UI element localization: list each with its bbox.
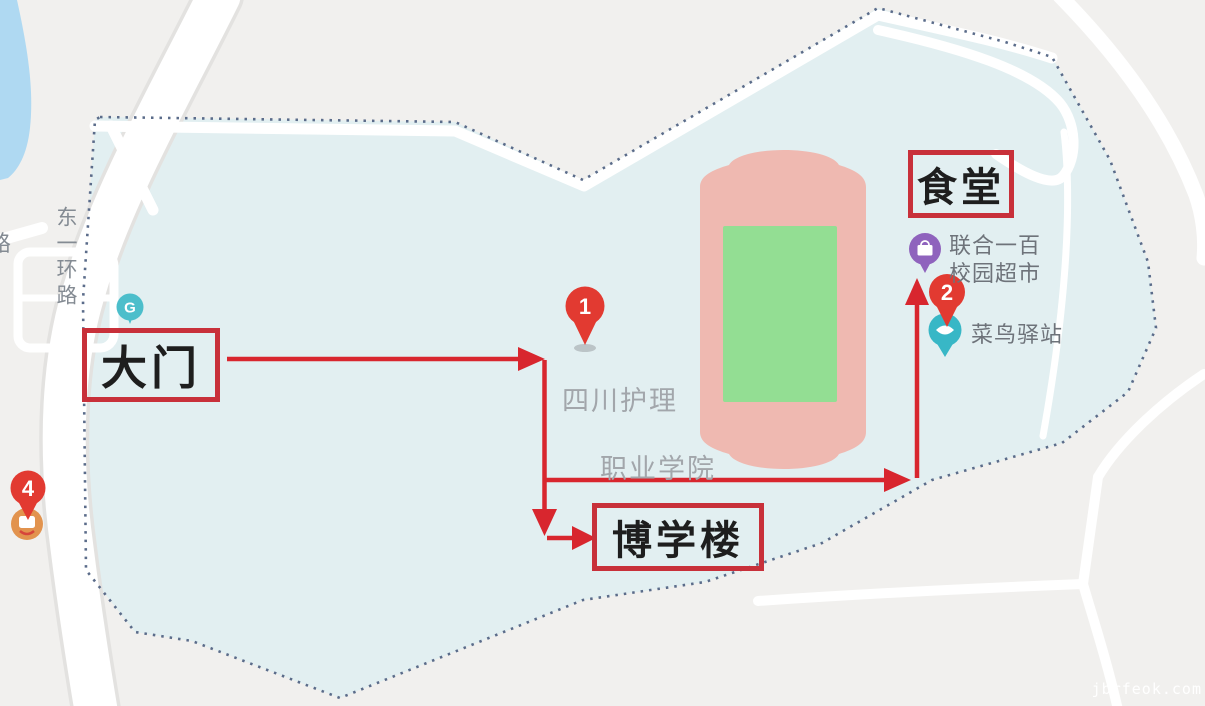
canteen-annotation-box: 食堂 xyxy=(908,150,1014,218)
supermarket-label-line2: 校园超市 xyxy=(949,261,1041,286)
supermarket-label: 联合一百 校园超市 xyxy=(949,232,1041,288)
sports-field xyxy=(723,226,837,402)
campus-map: G 1 xyxy=(0,0,1205,706)
cainiao-station-label: 菜鸟驿站 xyxy=(971,317,1063,349)
pin1-number: 1 xyxy=(579,294,591,319)
road-name-partial: 路 xyxy=(0,226,11,258)
campus-name-label: 四川护理 职业学院 xyxy=(562,384,716,486)
pin1-shadow xyxy=(574,344,596,352)
shopping-bag-body xyxy=(918,245,933,256)
pin4-number: 4 xyxy=(22,476,35,501)
gate-annotation-box: 大门 xyxy=(82,328,220,402)
stadium xyxy=(700,150,866,469)
campus-name-line2: 职业学院 xyxy=(600,454,716,484)
boxue-annotation-box: 博学楼 xyxy=(592,503,764,571)
road-name-label: 东一环路 xyxy=(50,206,80,310)
gate-marker-glyph: G xyxy=(124,300,136,317)
campus-name-line1: 四川护理 xyxy=(562,386,678,416)
supermarket-label-line1: 联合一百 xyxy=(949,233,1041,258)
watermark: jbrfeok.com xyxy=(1092,680,1202,698)
